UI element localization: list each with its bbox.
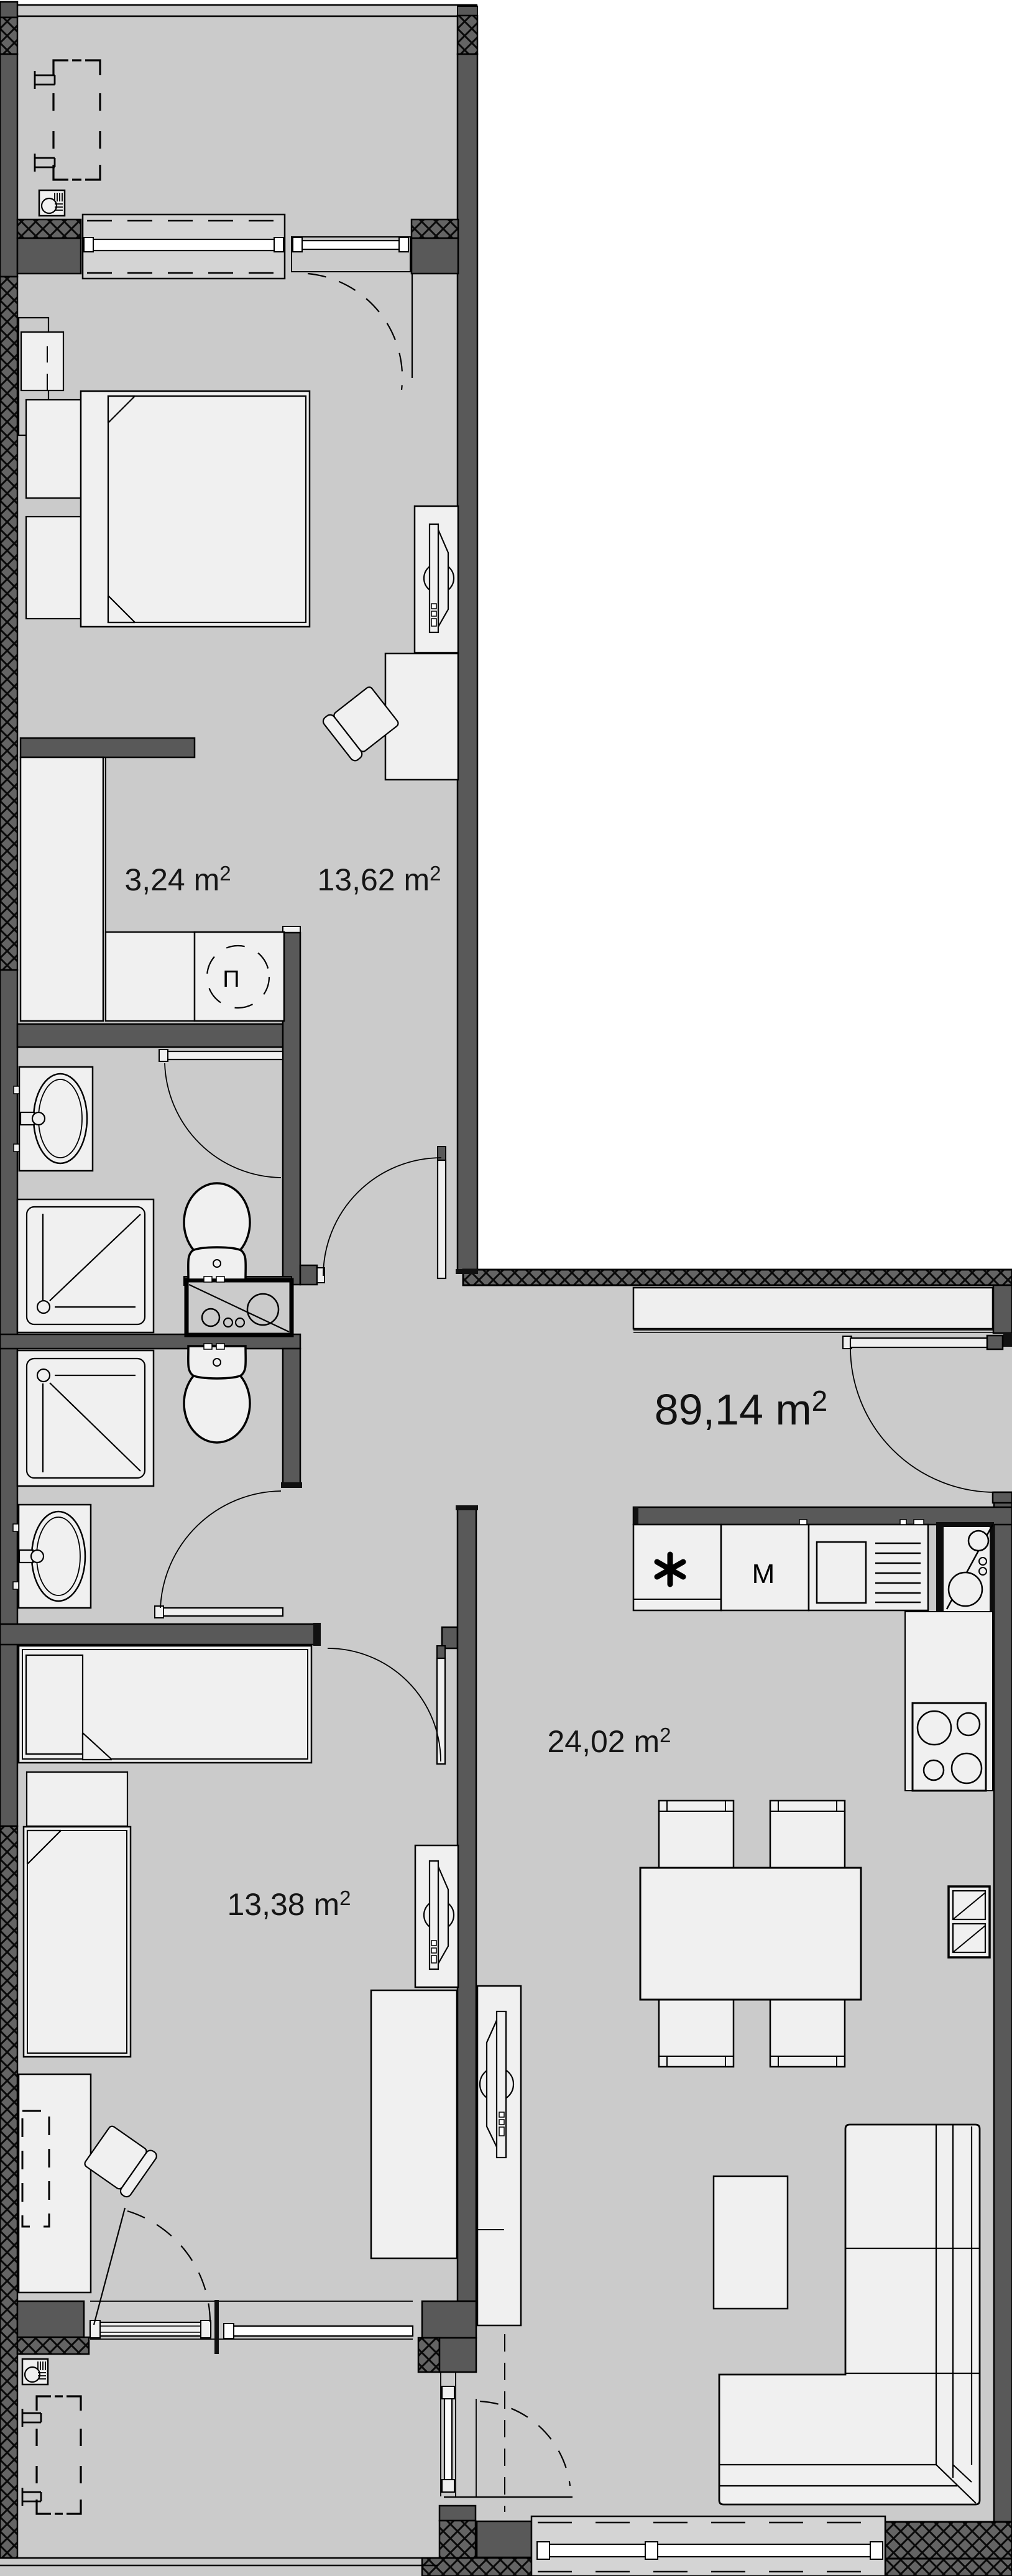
svg-text:3,24 m2: 3,24 m2 bbox=[124, 862, 231, 897]
svg-text:89,14 m2: 89,14 m2 bbox=[655, 1385, 828, 1434]
svg-text:13,38 m2: 13,38 m2 bbox=[227, 1886, 351, 1922]
svg-text:Π: Π bbox=[223, 966, 239, 992]
svg-text:M: M bbox=[752, 1559, 775, 1589]
svg-text:24,02 m2: 24,02 m2 bbox=[547, 1724, 671, 1759]
svg-text:13,62 m2: 13,62 m2 bbox=[317, 862, 441, 897]
